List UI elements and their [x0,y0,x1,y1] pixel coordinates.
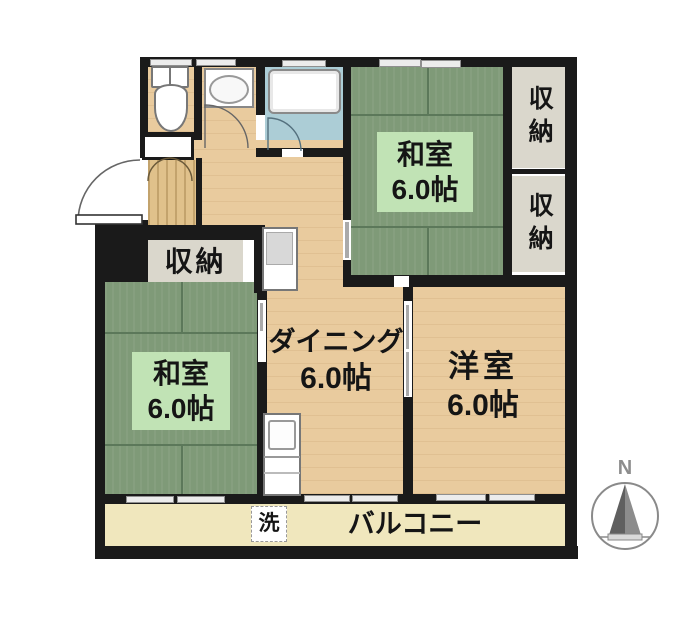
room-name: バルコニー [348,508,482,542]
washroom-door-arc-icon [205,105,248,148]
washitsu-left-label: 和室 6.0帖 [132,352,230,430]
room-name: 和室 [397,137,453,172]
closet-right-bottom-label: 収納 [512,179,565,271]
western-room-label: 洋室 6.0帖 [410,340,556,432]
entrance-door-arc-icon [78,160,140,222]
compass-north-label: N [612,456,638,480]
storage-label: 収納 [523,192,554,258]
room-name: 和室 [153,356,209,391]
storage-label: 収納 [523,85,554,151]
shoe-closet-door-arc-icon [148,158,170,181]
washitsu-top-label: 和室 6.0帖 [377,132,473,212]
closet-hall-label: 収納 [148,240,243,282]
shoe-closet-door-arc-icon [170,158,192,181]
room-name: 洋室 [448,348,518,387]
floorplan: 和室 6.0帖 和室 6.0帖 ダイニング 6.0帖 洋室 6.0帖 収納 収納… [0,0,700,626]
laundry-box: 洗 [251,506,287,542]
room-size: 6.0帖 [300,360,372,398]
laundry-label: 洗 [259,511,280,537]
room-size: 6.0帖 [148,391,215,426]
bathroom-door-arc-icon [268,118,301,151]
balcony-label: バルコニー [320,506,510,544]
closet-right-top-label: 収納 [512,70,565,166]
room-size: 6.0帖 [392,172,459,207]
room-size: 6.0帖 [447,387,519,425]
entrance-door-leaf-icon [76,215,142,224]
storage-label: 収納 [164,244,226,279]
dining-label: ダイニング 6.0帖 [258,318,414,406]
north-letter: N [618,456,632,481]
room-name: ダイニング [269,326,404,360]
compass-icon [586,480,666,554]
